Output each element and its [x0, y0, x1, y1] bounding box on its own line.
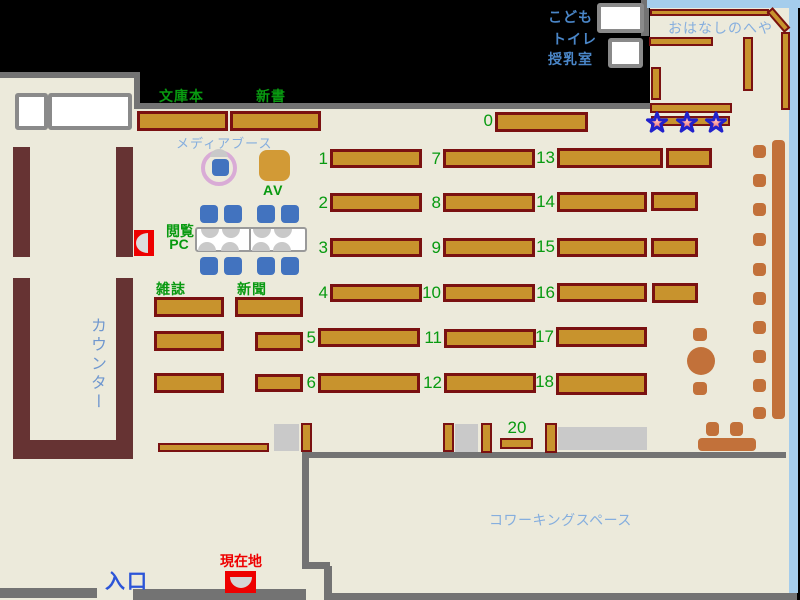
story-shelf — [650, 9, 769, 16]
current-location-label: 現在地 — [220, 551, 262, 571]
gray-counter — [558, 427, 647, 450]
coworking-wall-step-v — [324, 566, 332, 600]
star-icon — [647, 113, 666, 131]
star-icons — [645, 110, 731, 136]
study-chair — [753, 321, 766, 334]
shelf-number-11: 11 — [422, 328, 442, 348]
shelf-number-6: 6 — [296, 373, 316, 393]
end-shelf — [301, 423, 312, 452]
pc-chair — [257, 257, 275, 275]
shelf-9 — [443, 238, 535, 257]
kids-label: こども — [548, 7, 593, 27]
shelf-paperbacks — [137, 111, 228, 131]
paperbacks-label: 文庫本 — [159, 86, 204, 106]
shelf-14b — [651, 192, 698, 211]
wall-top-mid — [137, 103, 650, 109]
study-chair — [753, 407, 766, 419]
shelf-15 — [557, 238, 647, 257]
pc-chair — [200, 257, 218, 275]
shelf-magazines-1 — [154, 297, 224, 317]
shelf-number-4: 4 — [308, 283, 328, 303]
counter-bar — [13, 147, 30, 257]
counter-bar — [13, 440, 133, 459]
shelf-number-7: 7 — [421, 149, 441, 169]
study-chair — [753, 233, 766, 246]
counter-bar — [13, 278, 30, 459]
shelf-0 — [495, 112, 588, 132]
pc-table-divider — [249, 228, 251, 251]
counter-bar — [116, 147, 133, 257]
end-shelf — [545, 423, 557, 453]
shelf-8 — [443, 193, 535, 212]
shelf-20 — [500, 438, 533, 449]
shelf-7 — [443, 149, 535, 168]
star-icon — [706, 113, 725, 131]
study-chair — [753, 292, 766, 305]
side-table-chair — [706, 422, 719, 436]
shelf-number-18: 18 — [534, 372, 554, 392]
shelf-number-13: 13 — [535, 148, 555, 168]
study-chair — [753, 145, 766, 158]
shelf-1 — [330, 149, 422, 168]
pc-chair — [281, 257, 299, 275]
shelf-number-16: 16 — [535, 283, 555, 303]
coworking-label: コワーキングスペース — [489, 510, 632, 530]
shelf-6 — [318, 373, 420, 393]
shelf-number-8: 8 — [421, 193, 441, 213]
toilet-label: トイレ — [552, 29, 597, 49]
story-shelf — [649, 37, 713, 46]
pc-chair — [224, 257, 242, 275]
study-chair — [753, 203, 766, 216]
shelf-13b — [666, 148, 712, 168]
counter-label: カウンター — [84, 317, 108, 412]
side-table-chair — [730, 422, 743, 436]
story-shelf — [651, 67, 661, 100]
star-icon — [677, 113, 696, 131]
shelf-number-0: 0 — [473, 111, 493, 131]
new-books-label: 新書 — [256, 86, 286, 106]
shelf-number-1: 1 — [308, 149, 328, 169]
shelf-number-20: 20 — [502, 418, 532, 438]
fixture-box — [48, 93, 132, 130]
shelf-17 — [556, 327, 647, 347]
round-table-chair — [693, 328, 707, 341]
coworking-wall-bottom — [332, 593, 797, 600]
pc-chair — [257, 205, 275, 223]
shelf-number-3: 3 — [308, 238, 328, 258]
fixture-box — [15, 93, 48, 130]
magazines-label: 雑誌 — [156, 279, 186, 299]
study-chair — [753, 379, 766, 392]
toilet-box — [597, 3, 644, 33]
pc-chair — [224, 205, 242, 223]
pc-label: 閲覧 PC — [166, 225, 192, 251]
shelf-18 — [556, 373, 647, 395]
coworking-wall-top — [302, 452, 786, 458]
shelf-magazines-3 — [154, 373, 224, 393]
story-room-wall-top — [647, 0, 800, 8]
study-chair — [753, 263, 766, 276]
shelf-number-12: 12 — [422, 373, 442, 393]
shelf-new-books — [230, 111, 321, 131]
shelf-2 — [330, 193, 422, 212]
round-table — [687, 347, 715, 375]
side-table — [698, 438, 756, 451]
av-label: AV — [263, 182, 283, 198]
story-shelf — [743, 37, 753, 91]
entrance-label: 入口 — [105, 565, 149, 594]
shelf-11 — [444, 329, 536, 348]
wall-top-left — [0, 72, 140, 78]
shelf-number-14: 14 — [535, 192, 555, 212]
shelf-12 — [444, 373, 536, 393]
shelf-number-17: 17 — [534, 327, 554, 347]
shelf-3 — [330, 238, 422, 257]
av-table — [259, 150, 290, 181]
wall-bottom-mid — [133, 589, 306, 600]
study-chair — [753, 350, 766, 363]
end-shelf — [443, 423, 454, 452]
nursing-box — [608, 38, 643, 68]
pc-chair — [281, 205, 299, 223]
pc-label-line2: PC — [169, 236, 188, 252]
shelf-14 — [557, 192, 647, 212]
shelf-number-10: 10 — [421, 283, 441, 303]
bench — [158, 443, 269, 452]
wall-bottom-left — [0, 588, 97, 598]
newspapers-label: 新聞 — [237, 279, 267, 299]
story-shelf — [781, 32, 790, 110]
story-room-label: おはなしのへや — [668, 18, 773, 38]
gray-cabinet — [274, 424, 299, 451]
counter-bar — [116, 278, 133, 442]
pc-chair — [200, 205, 218, 223]
story-room-wall-right — [789, 0, 798, 593]
media-booth-label: メディアブース — [176, 133, 272, 152]
end-shelf — [481, 423, 492, 453]
shelf-15b — [651, 238, 698, 257]
study-chair — [753, 174, 766, 187]
shelf-5 — [318, 328, 420, 347]
shelf-newspapers-1 — [235, 297, 303, 317]
round-table-chair — [693, 382, 707, 395]
shelf-magazines-2 — [154, 331, 224, 351]
shelf-16 — [557, 283, 647, 302]
shelf-number-5: 5 — [296, 328, 316, 348]
media-booth-chair — [212, 159, 229, 176]
shelf-number-2: 2 — [308, 193, 328, 213]
shelf-13 — [557, 148, 663, 168]
library-floor-map: こども トイレ 授乳室 おはなしのへや 文庫本 新書 メディアブース AV 閲覧… — [0, 0, 800, 600]
study-counter-table — [772, 140, 785, 419]
shelf-10 — [443, 284, 535, 302]
nursing-label: 授乳室 — [548, 49, 593, 69]
gray-cabinet — [455, 424, 478, 452]
shelf-number-9: 9 — [421, 238, 441, 258]
coworking-wall-left — [302, 452, 309, 569]
shelf-number-15: 15 — [535, 237, 555, 257]
shelf-4 — [330, 284, 422, 302]
shelf-16b — [652, 283, 698, 303]
